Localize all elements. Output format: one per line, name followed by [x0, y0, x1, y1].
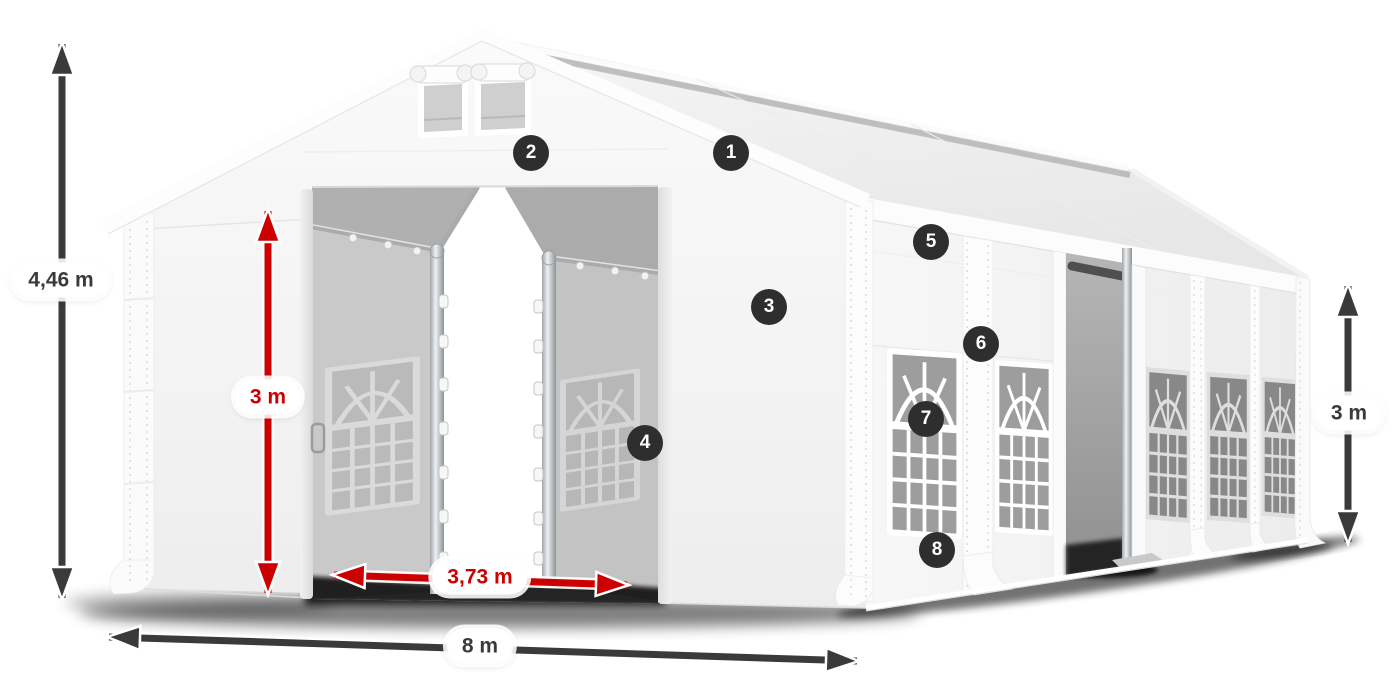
callout-marker-6[interactable]: 6: [963, 326, 999, 362]
dimension-label-side-height: 3 m: [1316, 396, 1382, 431]
vent-roll-right: [471, 63, 535, 81]
dimension-label-total-height: 4,46 m: [13, 263, 108, 298]
callout-marker-4[interactable]: 4: [627, 425, 663, 461]
tent-illustration: [0, 0, 1400, 700]
dimension-label-inner-height: 3 m: [235, 380, 301, 415]
side-door-curtain: [1132, 265, 1146, 565]
callout-marker-1[interactable]: 1: [713, 135, 749, 171]
side-window-5: [1262, 377, 1298, 519]
vent-roll-left: [410, 65, 473, 83]
side-door-pole: [1122, 248, 1132, 566]
callout-marker-8[interactable]: 8: [919, 532, 955, 568]
callout-marker-2[interactable]: 2: [513, 135, 549, 171]
side-window-4: [1207, 372, 1250, 523]
side-window-2: [995, 360, 1053, 536]
front-entrance-interior: [305, 186, 665, 606]
front-door-left: [300, 189, 313, 599]
callout-marker-7[interactable]: 7: [908, 401, 944, 437]
dimension-label-entrance-width: 3,73 m: [432, 560, 527, 595]
side-window-3: [1146, 367, 1190, 523]
dimension-label-total-length: 8 m: [447, 629, 513, 664]
callout-marker-3[interactable]: 3: [751, 289, 787, 325]
side-window-1: [887, 348, 962, 540]
vent-window-right: [475, 76, 531, 136]
callout-marker-5[interactable]: 5: [913, 224, 949, 260]
front-left-corner-strip: [110, 213, 154, 594]
vent-window-left: [418, 78, 468, 138]
tent-dimensions-diagram: 4,46 m 3 m 3,73 m 8 m 3 m 1 2 3 4 5 6 7 …: [0, 0, 1400, 700]
interior-window-left: [325, 356, 420, 516]
front-door-right: [658, 187, 672, 604]
